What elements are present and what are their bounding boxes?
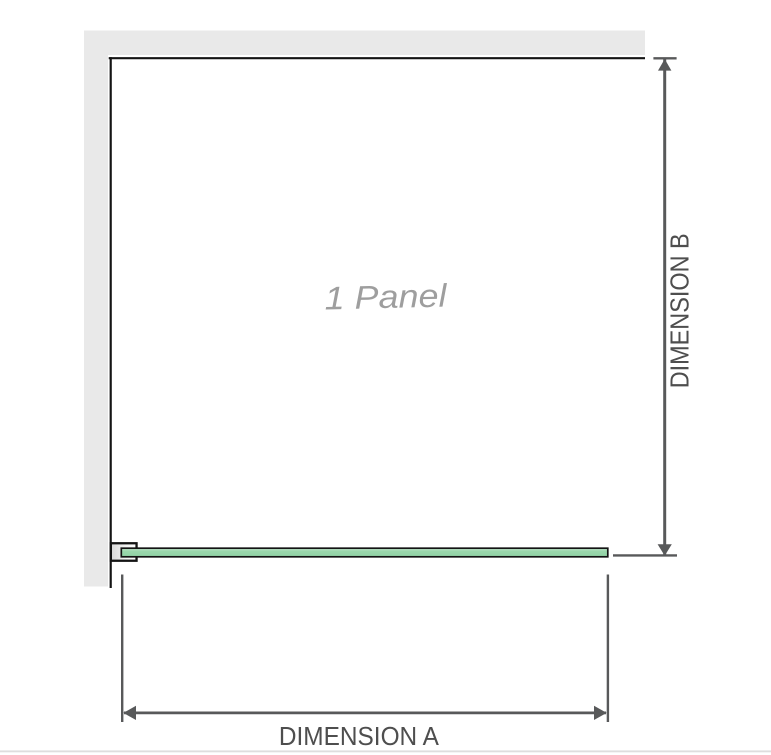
svg-text:DIMENSION B: DIMENSION B <box>664 233 694 388</box>
svg-text:1 Panel: 1 Panel <box>324 277 448 316</box>
svg-text:DIMENSION A: DIMENSION A <box>279 721 439 751</box>
